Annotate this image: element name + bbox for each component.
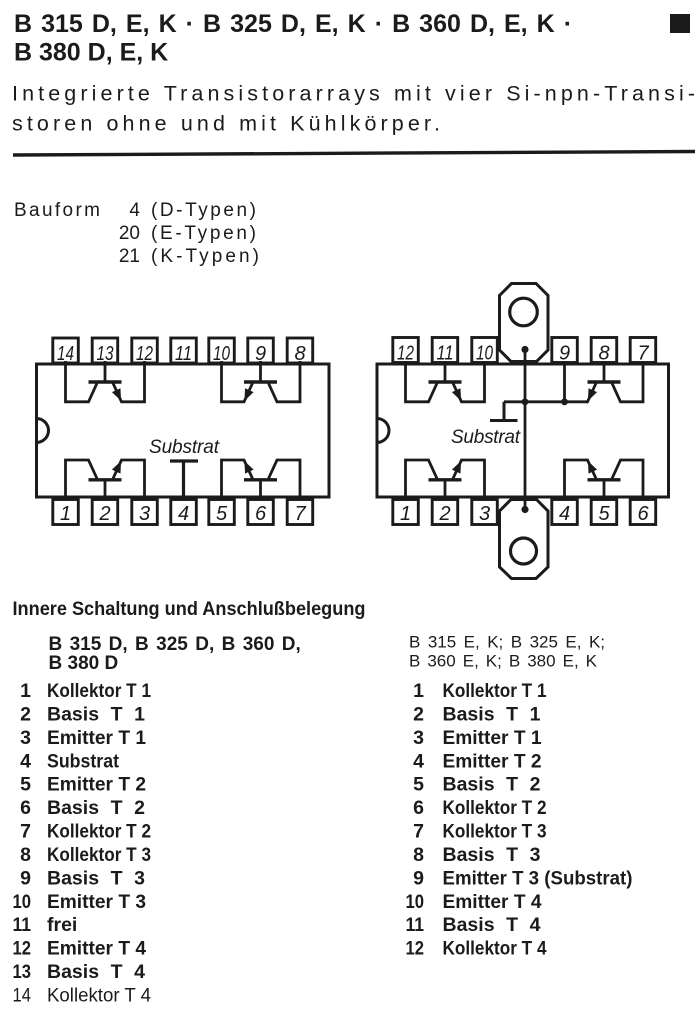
svg-text:4: 4	[178, 503, 189, 525]
svg-text:1: 1	[60, 503, 71, 525]
svg-text:10: 10	[406, 891, 425, 913]
svg-text:6: 6	[255, 503, 267, 525]
svg-text:B 380 D: B 380 D	[49, 653, 119, 674]
svg-text:12: 12	[13, 938, 32, 960]
svg-text:Emitter T 2: Emitter T 2	[443, 750, 542, 772]
svg-text:frei: frei	[47, 914, 77, 936]
svg-text:Kollektor T 1: Kollektor T 1	[47, 680, 151, 702]
svg-text:Basis T 3: Basis T 3	[443, 844, 541, 866]
svg-text:Emitter T 4: Emitter T 4	[443, 891, 542, 913]
svg-text:B 315 D, B 325 D, B 360 D,: B 315 D, B 325 D, B 360 D,	[49, 634, 301, 655]
svg-text:Emitter T 4: Emitter T 4	[47, 938, 146, 960]
svg-text:Emitter T 2: Emitter T 2	[47, 774, 146, 796]
svg-text:Basis T 3: Basis T 3	[47, 867, 145, 889]
svg-text:Kollektor T 2: Kollektor T 2	[47, 821, 151, 843]
svg-text:1: 1	[20, 680, 31, 702]
svg-text:B 380 D, E, K: B 380 D, E, K	[14, 39, 168, 67]
svg-text:B 315 D, E, K · B 325 D, E, K: B 315 D, E, K · B 325 D, E, K · B 360 D,…	[14, 10, 572, 38]
svg-text:Kollektor T 1: Kollektor T 1	[443, 680, 547, 702]
svg-text:Kollektor T 2: Kollektor T 2	[443, 797, 547, 819]
svg-text:Substrat: Substrat	[47, 750, 119, 772]
svg-text:2: 2	[98, 503, 110, 525]
svg-text:Kollektor T 3: Kollektor T 3	[443, 821, 547, 843]
svg-text:21: 21	[119, 246, 140, 267]
svg-text:(D-Typen): (D-Typen)	[151, 200, 256, 221]
svg-text:8: 8	[20, 844, 31, 866]
svg-text:Kollektor T 4: Kollektor T 4	[47, 985, 151, 1007]
svg-text:2: 2	[20, 703, 31, 725]
svg-text:Basis T 1: Basis T 1	[47, 703, 145, 725]
svg-text:1: 1	[413, 680, 424, 702]
svg-text:Emitter T 1: Emitter T 1	[47, 727, 146, 749]
svg-text:14: 14	[13, 985, 32, 1007]
svg-text:B 360 E, K; B 380 E, K: B 360 E, K; B 380 E, K	[409, 652, 598, 671]
svg-text:Kollektor T 4: Kollektor T 4	[443, 938, 547, 960]
svg-text:3: 3	[413, 727, 424, 749]
svg-text:11: 11	[406, 914, 425, 936]
svg-text:5: 5	[598, 503, 610, 525]
svg-text:(E-Typen): (E-Typen)	[151, 223, 256, 244]
svg-text:Emitter T 3 (Substrat): Emitter T 3 (Substrat)	[443, 867, 633, 889]
svg-text:Basis T 1: Basis T 1	[443, 703, 541, 725]
svg-text:2: 2	[438, 503, 450, 525]
svg-text:4: 4	[129, 200, 140, 221]
svg-text:7: 7	[413, 821, 424, 843]
svg-text:6: 6	[637, 503, 649, 525]
svg-text:9: 9	[20, 867, 31, 889]
svg-text:11: 11	[175, 343, 192, 365]
svg-text:Basis T 2: Basis T 2	[443, 774, 541, 796]
svg-text:4: 4	[413, 750, 424, 772]
svg-text:8: 8	[413, 844, 424, 866]
svg-text:20: 20	[119, 223, 140, 244]
svg-text:5: 5	[20, 774, 31, 796]
svg-text:3: 3	[20, 727, 31, 749]
svg-text:Substrat: Substrat	[149, 437, 220, 458]
svg-text:10: 10	[13, 891, 32, 913]
svg-text:Kollektor T 3: Kollektor T 3	[47, 844, 151, 866]
svg-text:3: 3	[479, 503, 490, 525]
svg-text:(K-Typen): (K-Typen)	[151, 246, 259, 267]
svg-text:Emitter T 3: Emitter T 3	[47, 891, 146, 913]
svg-text:Basis T 2: Basis T 2	[47, 797, 145, 819]
svg-text:7: 7	[294, 503, 306, 525]
svg-text:4: 4	[559, 503, 570, 525]
svg-text:13: 13	[13, 961, 32, 983]
svg-text:4: 4	[20, 750, 31, 772]
svg-text:B 315 E, K; B 325 E, K;: B 315 E, K; B 325 E, K;	[409, 633, 605, 652]
svg-text:2: 2	[413, 703, 424, 725]
svg-text:6: 6	[413, 797, 424, 819]
svg-text:Basis T 4: Basis T 4	[443, 914, 541, 936]
svg-text:Innere Schaltung und Anschlußb: Innere Schaltung und Anschlußbelegung	[13, 598, 366, 620]
svg-text:Substrat: Substrat	[451, 427, 521, 448]
svg-text:11: 11	[13, 914, 32, 936]
svg-text:3: 3	[139, 503, 150, 525]
svg-text:9: 9	[413, 867, 424, 889]
svg-text:5: 5	[413, 774, 424, 796]
svg-text:5: 5	[216, 503, 228, 525]
svg-text:1: 1	[400, 503, 411, 525]
svg-text:7: 7	[20, 821, 31, 843]
svg-text:Emitter T 1: Emitter T 1	[443, 727, 542, 749]
svg-text:12: 12	[406, 938, 425, 960]
svg-text:Basis T 4: Basis T 4	[47, 961, 145, 983]
svg-text:6: 6	[20, 797, 31, 819]
